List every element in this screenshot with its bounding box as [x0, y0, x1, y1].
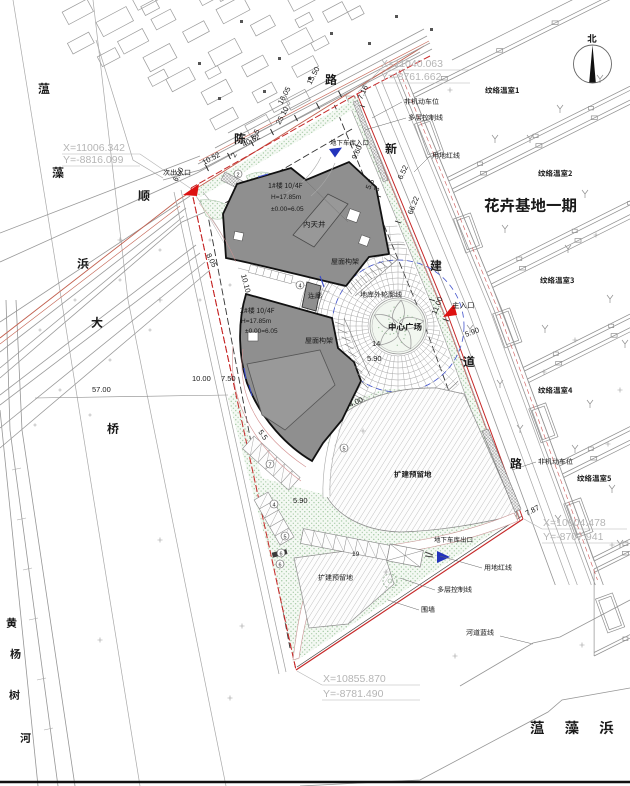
svg-text:Y=-8816.099: Y=-8816.099: [63, 154, 124, 166]
svg-text:X=10904.478: X=10904.478: [543, 517, 606, 529]
svg-text:5.90: 5.90: [293, 496, 308, 505]
svg-text:Y=-8761.662: Y=-8761.662: [381, 71, 442, 83]
svg-text:5: 5: [342, 446, 345, 452]
svg-text:X=11040.063: X=11040.063: [381, 58, 443, 70]
svg-text:14: 14: [372, 339, 380, 348]
svg-text:X=10855.870: X=10855.870: [323, 673, 386, 685]
svg-text:Y=-8707.941: Y=-8707.941: [543, 531, 604, 543]
svg-text:X=11006.342: X=11006.342: [63, 142, 125, 154]
svg-text:19: 19: [352, 551, 360, 558]
svg-text:H=17.85m: H=17.85m: [241, 318, 271, 325]
svg-text:H=17.85m: H=17.85m: [271, 194, 301, 201]
svg-text:5.90: 5.90: [367, 354, 382, 363]
svg-text:±0.00=6.05: ±0.00=6.05: [245, 328, 278, 335]
svg-text:6: 6: [279, 551, 282, 557]
svg-text:Y=-8781.490: Y=-8781.490: [323, 688, 384, 700]
svg-text:7.50: 7.50: [221, 374, 236, 383]
svg-text:57.00: 57.00: [92, 385, 111, 394]
svg-text:2: 2: [236, 172, 239, 178]
svg-text:4: 4: [298, 283, 301, 289]
svg-text:±0.00=6.05: ±0.00=6.05: [271, 206, 304, 213]
svg-text:6: 6: [278, 562, 281, 568]
svg-text:5: 5: [283, 534, 286, 540]
svg-text:10.00: 10.00: [192, 374, 211, 383]
svg-text:4: 4: [272, 502, 275, 508]
svg-text:7: 7: [268, 462, 271, 468]
